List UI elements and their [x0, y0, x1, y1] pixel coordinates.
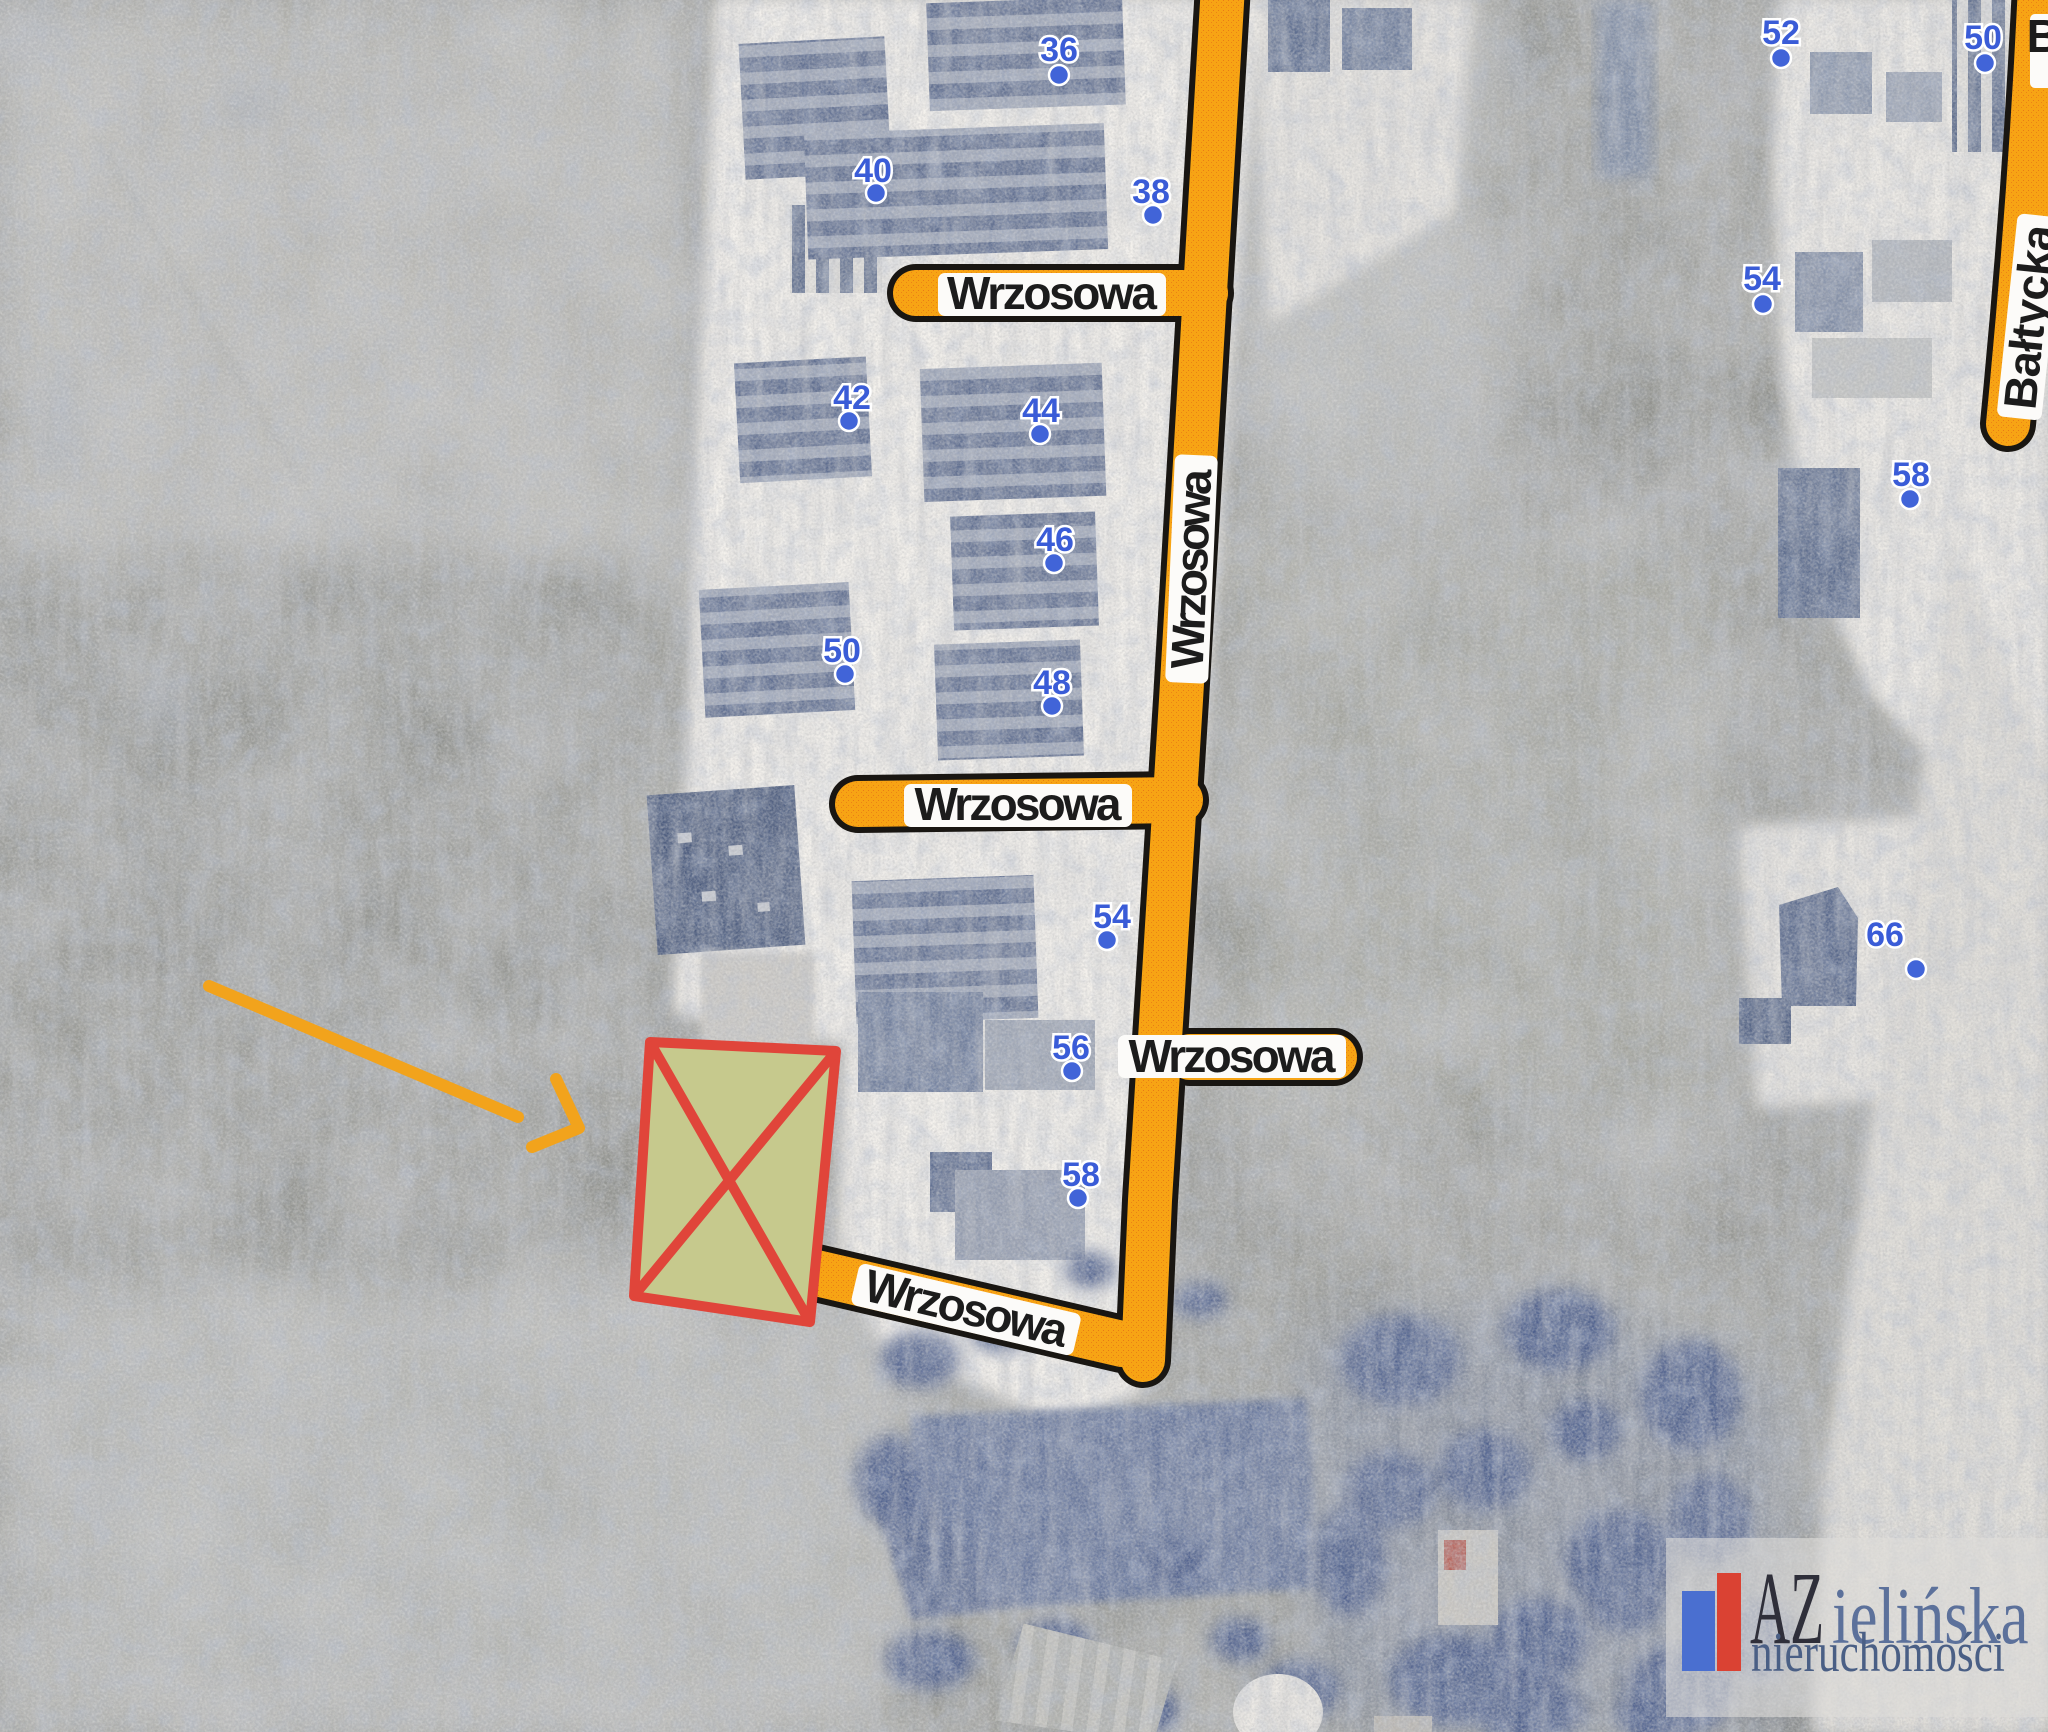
svg-text:54: 54	[1743, 260, 1781, 298]
svg-text:Ba: Ba	[2027, 10, 2048, 62]
svg-text:36: 36	[1040, 31, 1078, 69]
svg-text:nieruchomości: nieruchomości	[1751, 1621, 2005, 1684]
svg-text:Wrzosowa: Wrzosowa	[915, 778, 1122, 830]
svg-text:50: 50	[1964, 19, 2002, 57]
svg-text:Wrzosowa: Wrzosowa	[1129, 1030, 1336, 1082]
svg-text:Wrzosowa: Wrzosowa	[947, 267, 1157, 319]
svg-text:52: 52	[1762, 14, 1800, 52]
svg-text:66: 66	[1866, 916, 1904, 954]
svg-text:Wrzosowa: Wrzosowa	[1161, 468, 1222, 670]
